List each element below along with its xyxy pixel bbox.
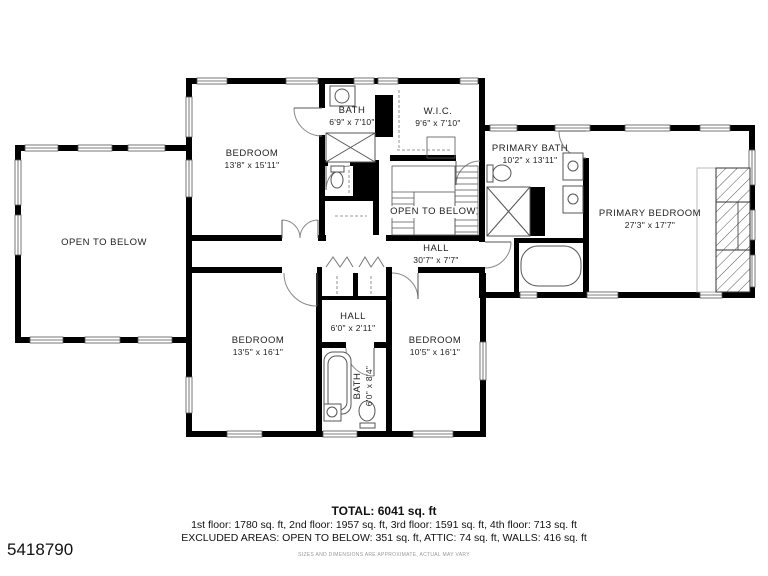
shower-primary-bath — [487, 187, 530, 236]
toilet-upper-bath — [331, 166, 344, 188]
primary-bedroom-label: PRIMARY BEDROOM 27'3" x 17'7" — [599, 208, 701, 231]
excluded-areas: EXCLUDED AREAS: OPEN TO BELOW: 351 sq. f… — [0, 532, 768, 544]
footer-summary: TOTAL: 6041 sq. ft 1st floor: 1780 sq. f… — [0, 504, 768, 558]
total-area: TOTAL: 6041 sq. ft — [0, 504, 768, 518]
wic-label: W.I.C. 9'6" x 7'10" — [415, 106, 461, 129]
tub-primary-bath — [521, 246, 581, 286]
hall-main-label: HALL 30'7" x 7'7" — [413, 243, 459, 266]
disclaimer: SIZES AND DIMENSIONS ARE APPROXIMATE, AC… — [0, 552, 768, 558]
toilet-primary-bath — [487, 165, 511, 182]
primary-bath-label: PRIMARY BATH 10'2" x 13'11" — [492, 143, 568, 166]
floor-areas: 1st floor: 1780 sq. ft, 2nd floor: 1957 … — [0, 519, 768, 531]
bath-top-label: BATH 6'9" x 7'10" — [329, 105, 375, 128]
floor-plan-drawing — [0, 0, 768, 576]
open-to-below-center-label: OPEN TO BELOW — [390, 206, 476, 218]
stairs — [392, 137, 478, 235]
bath-lower-label: BATH 6'0" x 8'4" — [352, 366, 375, 406]
shower-upper-bath — [326, 133, 375, 162]
bedroom-top-label: BEDROOM 13'8" x 15'11" — [225, 148, 280, 171]
bedroom-left-label: BEDROOM 13'5" x 16'1" — [232, 335, 285, 358]
floor-plan: OPEN TO BELOW BEDROOM 13'8" x 15'11" BAT… — [0, 0, 768, 576]
open-to-below-left-label: OPEN TO BELOW — [61, 237, 147, 249]
bed — [697, 168, 750, 292]
listing-id: 5418790 — [7, 540, 73, 560]
bedroom-right-label: BEDROOM 10'5" x 16'1" — [409, 335, 462, 358]
hall-small-label: HALL 6'0" x 2'11" — [331, 311, 376, 334]
